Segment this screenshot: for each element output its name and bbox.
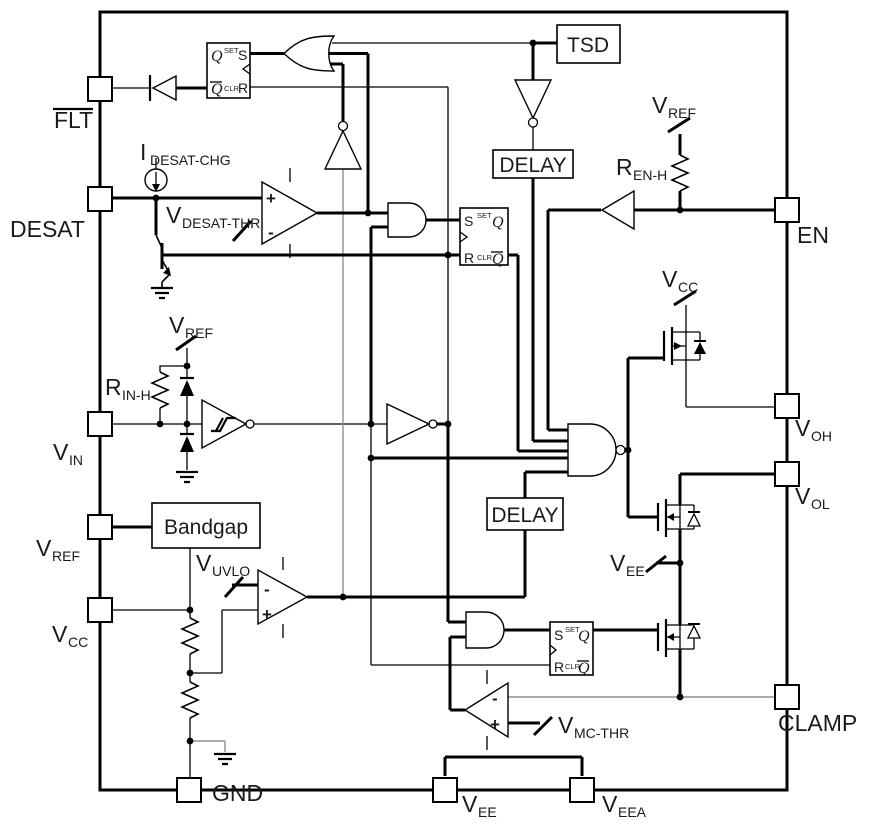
svg-text:V: V xyxy=(53,439,69,465)
svg-text:IN: IN xyxy=(69,452,83,468)
pin-vee xyxy=(433,778,457,802)
clamp-and-gate-icon xyxy=(466,612,504,648)
desat-latch-set: SET xyxy=(477,211,492,220)
svg-text:UVLO: UVLO xyxy=(212,563,250,579)
bandgap-label: Bandgap xyxy=(164,516,248,539)
pin-label-desat: DESAT xyxy=(10,216,85,242)
svg-text:I: I xyxy=(140,139,146,165)
pin-label-clamp: CLAMP xyxy=(778,710,857,736)
pin-vin xyxy=(88,412,112,436)
clamp-comp-minus: - xyxy=(492,689,498,708)
vin-clamp-diode-bottom-icon xyxy=(180,434,194,452)
clamp-latch-q: Q xyxy=(578,628,590,645)
uvlo-divider-resistor-top-icon xyxy=(182,618,198,654)
desat-discharge-transistor-icon xyxy=(156,235,171,288)
tsd-inverter-icon xyxy=(515,80,551,127)
block-diagram: TSD DELAY DELAY Bandgap Q SET S Q CLR R … xyxy=(0,0,874,831)
vin-clamp-diode-top-icon xyxy=(180,378,194,396)
delay-bottom-label: DELAY xyxy=(491,504,558,527)
gate-driver-block-diagram: TSD DELAY DELAY Bandgap Q SET S Q CLR R … xyxy=(0,0,874,831)
svg-text:V: V xyxy=(602,791,618,817)
svg-text:CC: CC xyxy=(68,634,88,650)
vin-schmitt-trigger-icon xyxy=(202,400,254,448)
miller-clamp-comparator: - + xyxy=(465,683,508,737)
fault-latch: Q SET S Q CLR R xyxy=(207,43,250,98)
svg-text:REF: REF xyxy=(668,105,696,121)
svg-text:V: V xyxy=(795,483,811,509)
uvlo-comp-minus: - xyxy=(264,580,270,599)
fault-latch-set: SET xyxy=(224,46,239,55)
pin-label-vin: V IN xyxy=(53,439,83,468)
svg-text:V: V xyxy=(558,712,574,738)
uvlo-comp-plus: + xyxy=(262,605,272,624)
pin-en xyxy=(775,198,799,222)
junction-dots xyxy=(153,40,684,745)
label-ren-h: R EN-H xyxy=(616,154,667,183)
pin-label-vol: V OL xyxy=(795,483,830,512)
desat-latch-q: Q xyxy=(492,214,504,231)
pin-label-veea: V EEA xyxy=(602,791,647,820)
delay-top-block: DELAY xyxy=(493,150,573,178)
label-rin-h: R IN-H xyxy=(105,374,151,403)
uvlo-comparator: - + xyxy=(258,570,307,624)
pin-label-vcc: V CC xyxy=(52,621,88,650)
pin-gnd xyxy=(177,778,201,802)
pin-vref xyxy=(88,515,112,539)
svg-text:V: V xyxy=(36,535,52,561)
pin-label-gnd: GND xyxy=(212,780,263,806)
svg-text:EEA: EEA xyxy=(618,804,647,820)
pin-label-en: EN xyxy=(797,222,829,248)
rin-h-resistor-icon xyxy=(152,372,168,408)
svg-text:DESAT-THR: DESAT-THR xyxy=(182,215,260,231)
desat-latch-s: S xyxy=(464,213,473,229)
label-vcc-rail: V CC xyxy=(662,266,698,295)
svg-text:V: V xyxy=(196,550,212,576)
pin-clamp xyxy=(775,685,799,709)
desat-and-gate-icon xyxy=(388,203,426,237)
svg-text:FLT: FLT xyxy=(54,107,93,133)
uvlo-divider-resistor-bottom-icon xyxy=(182,682,198,718)
desat-latch-qbar: Q xyxy=(492,251,504,268)
clamp-comp-plus: + xyxy=(490,715,500,734)
label-vuvlo: V UVLO xyxy=(196,550,250,579)
fault-latch-q: Q xyxy=(211,48,223,65)
or-gate-icon xyxy=(284,36,334,71)
desat-latch: S SET Q R CLR Q xyxy=(460,208,508,268)
label-vee-rail: V EE xyxy=(610,550,645,579)
uvlo-inverter-icon xyxy=(325,122,361,170)
vin-buffer-inverter-icon xyxy=(387,404,437,444)
svg-text:V: V xyxy=(462,791,478,817)
svg-text:V: V xyxy=(652,92,668,118)
label-vref-rail-vin: V REF xyxy=(169,312,213,341)
svg-text:OH: OH xyxy=(811,428,832,444)
fault-latch-r: R xyxy=(238,80,248,96)
label-vmc-thr: V MC-THR xyxy=(558,712,629,741)
pin-flt xyxy=(88,77,112,101)
svg-text:V: V xyxy=(52,621,68,647)
svg-text:R: R xyxy=(105,374,122,400)
ground-symbol-bjt xyxy=(151,288,173,298)
delay-top-label: DELAY xyxy=(499,154,566,177)
clamp-latch-qbar: Q xyxy=(578,660,590,677)
label-vref-rail-en: V REF xyxy=(652,92,696,121)
pullup-pmos-icon xyxy=(664,327,706,365)
svg-text:DESAT-CHG: DESAT-CHG xyxy=(150,152,231,168)
desat-charge-current-source-icon xyxy=(145,169,167,192)
pin-label-vee: V EE xyxy=(462,791,497,820)
desat-latch-r: R xyxy=(464,250,474,266)
clamp-latch: S SET Q R CLR Q xyxy=(550,622,593,677)
fault-latch-qbar: Q xyxy=(211,81,223,98)
delay-bottom-block: DELAY xyxy=(487,498,563,530)
flt-diode-icon xyxy=(150,75,176,101)
pin-vcc xyxy=(88,598,112,622)
desat-comparator: + - xyxy=(262,182,317,244)
clamp-latch-r: R xyxy=(554,659,564,675)
svg-text:V: V xyxy=(795,415,811,441)
svg-text:IN-H: IN-H xyxy=(122,387,151,403)
svg-text:R: R xyxy=(616,154,633,180)
svg-text:CC: CC xyxy=(678,279,698,295)
svg-text:V: V xyxy=(169,312,185,338)
svg-text:OL: OL xyxy=(811,496,830,512)
desat-comp-minus: - xyxy=(268,223,274,242)
fault-latch-s: S xyxy=(238,47,247,63)
bandgap-block: Bandgap xyxy=(152,503,260,548)
svg-text:EE: EE xyxy=(626,563,645,579)
en-buffer-icon xyxy=(602,191,634,229)
clamp-latch-s: S xyxy=(554,627,563,643)
svg-text:V: V xyxy=(610,550,626,576)
svg-text:REF: REF xyxy=(52,548,80,564)
pin-veea xyxy=(570,778,594,802)
svg-text:MC-THR: MC-THR xyxy=(574,725,629,741)
svg-text:EE: EE xyxy=(478,804,497,820)
pin-label-flt: FLT xyxy=(53,107,93,133)
ren-h-resistor-icon xyxy=(672,155,688,191)
pin-label-vref: V REF xyxy=(36,535,80,564)
svg-text:REF: REF xyxy=(185,325,213,341)
pin-desat xyxy=(88,187,112,211)
svg-text:V: V xyxy=(662,266,678,292)
ground-symbol-divider xyxy=(214,754,236,764)
label-vdesat-thr: V DESAT-THR xyxy=(166,202,260,231)
ground-symbol-vin-clamp xyxy=(176,472,198,482)
desat-latch-clr: CLR xyxy=(477,253,493,262)
desat-comp-plus: + xyxy=(266,189,276,208)
tsd-label: TSD xyxy=(567,34,609,57)
tsd-block: TSD xyxy=(557,25,620,63)
svg-text:V: V xyxy=(166,202,182,228)
svg-text:EN-H: EN-H xyxy=(633,167,667,183)
output-nand-gate-icon xyxy=(568,424,625,476)
label-idesat-chg: I DESAT-CHG xyxy=(140,139,231,168)
pin-label-voh: V OH xyxy=(795,415,832,444)
